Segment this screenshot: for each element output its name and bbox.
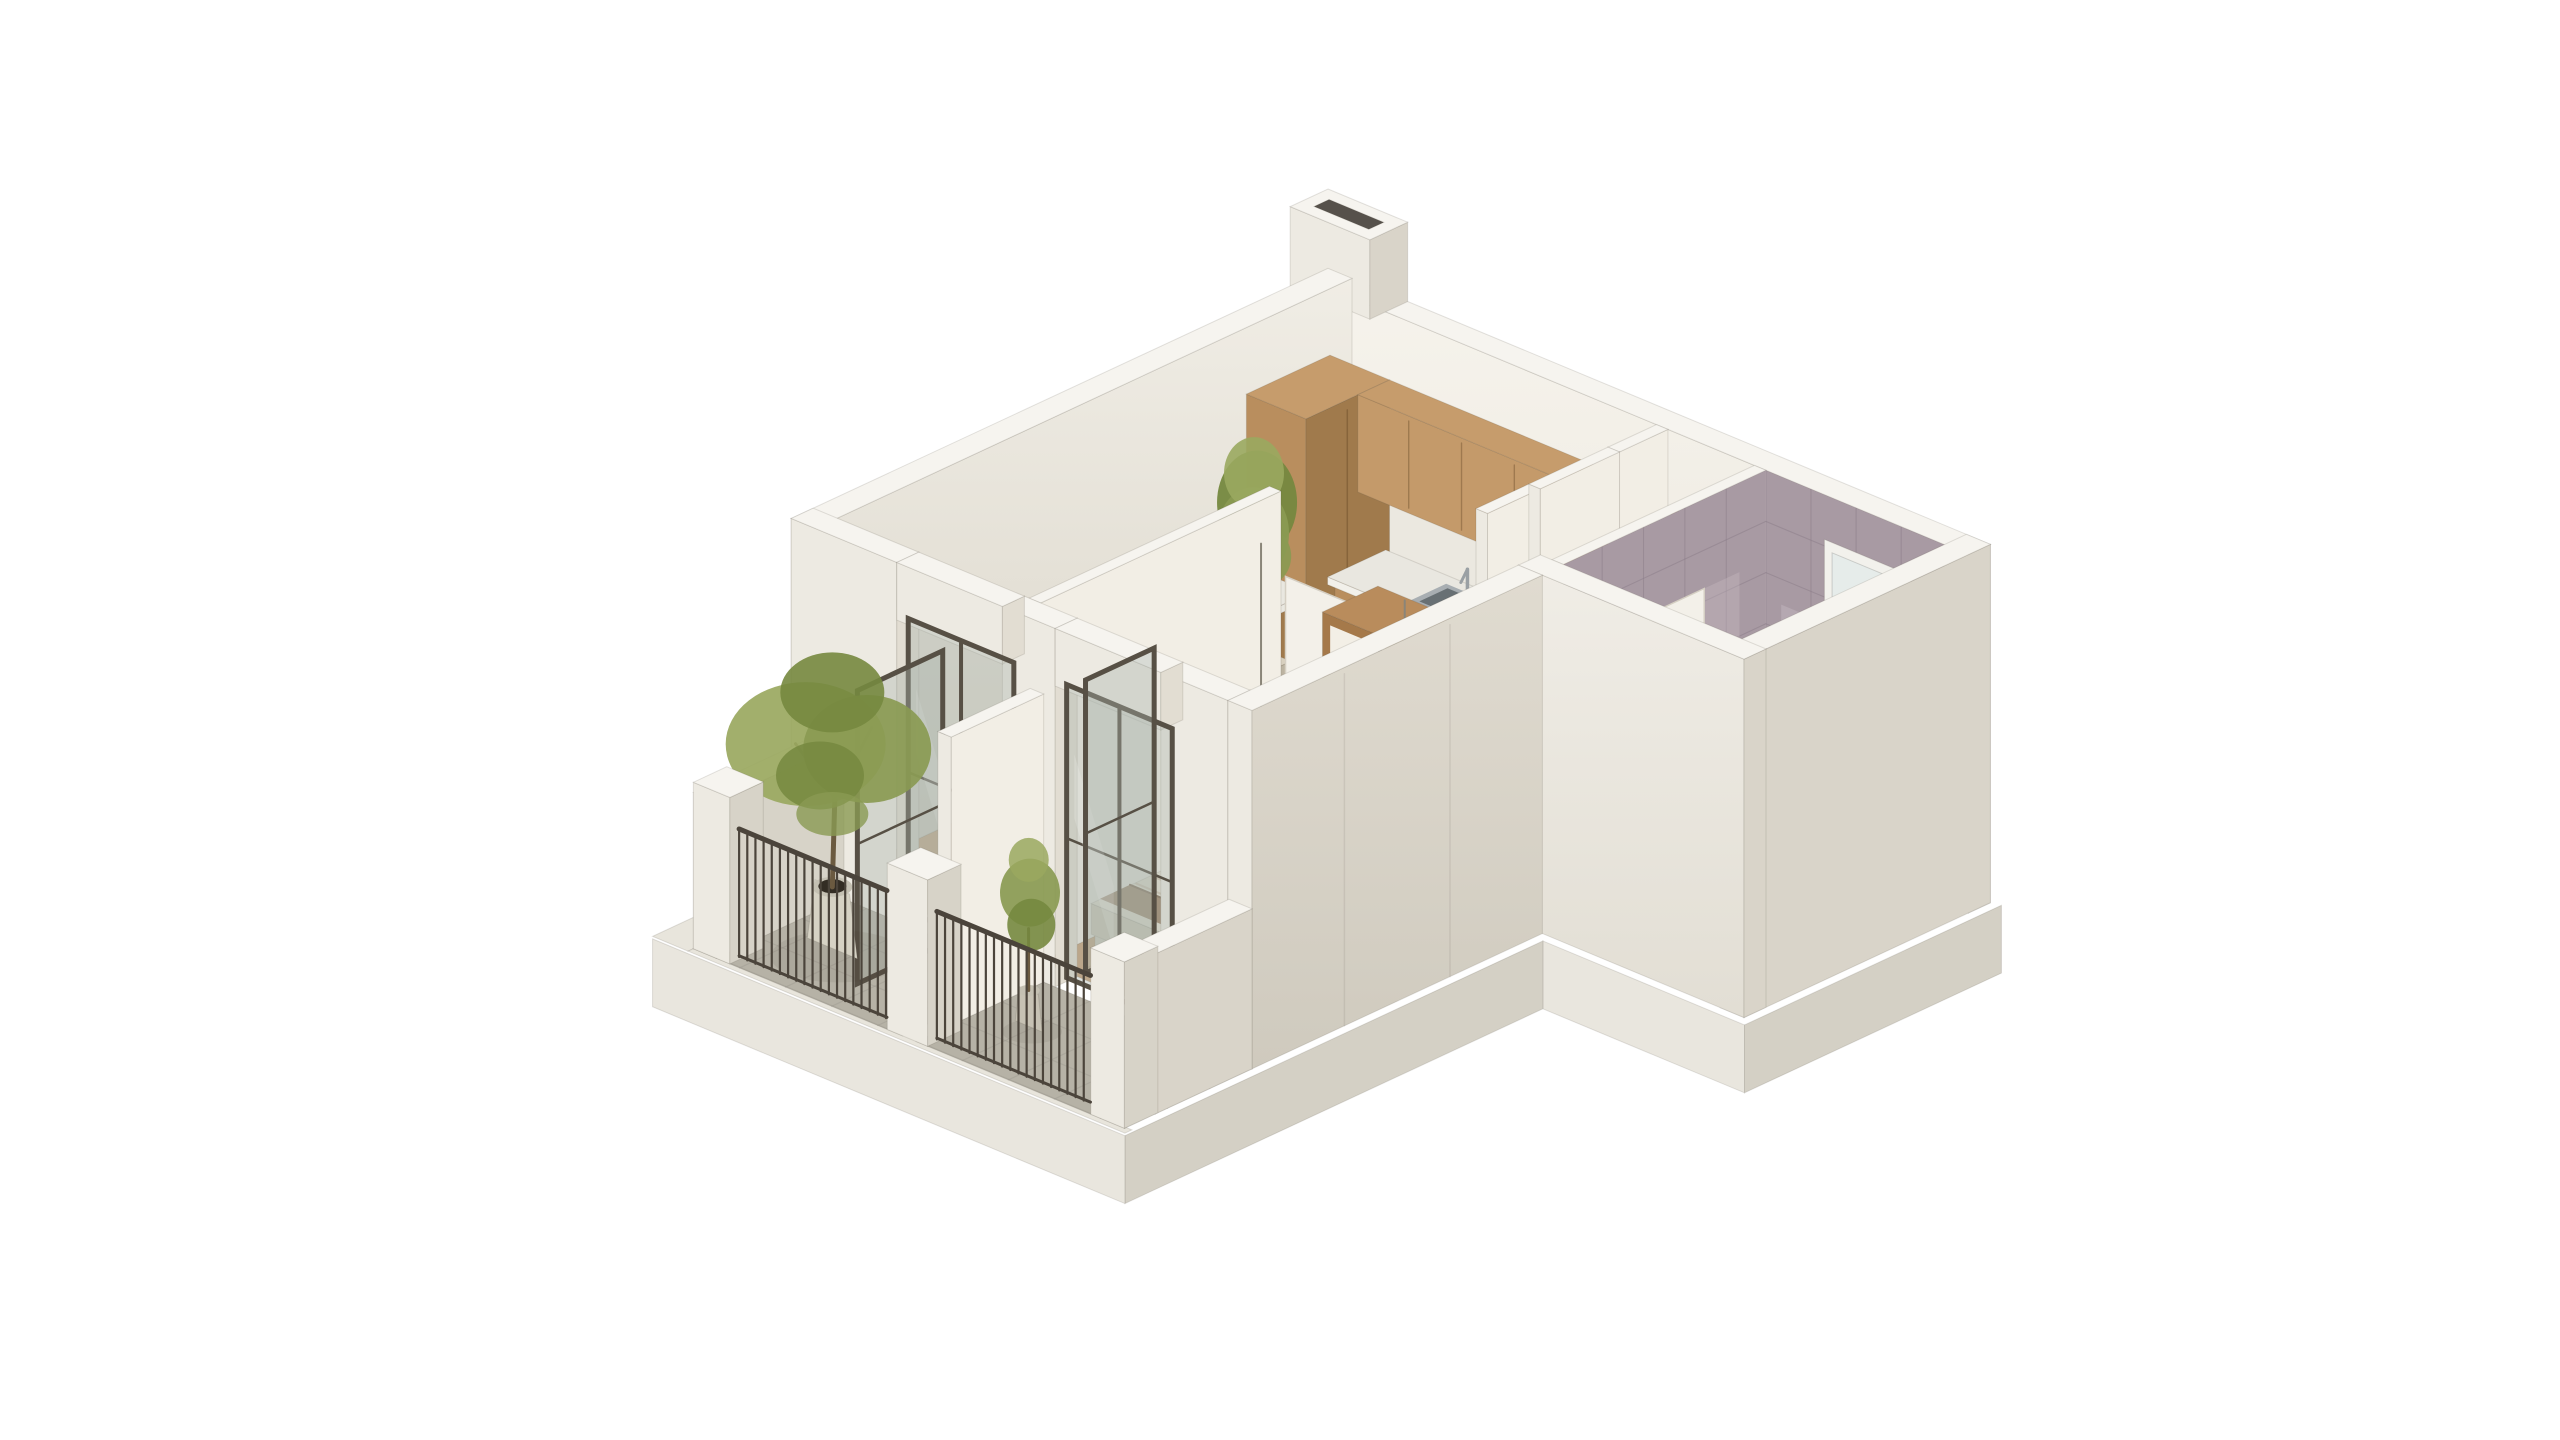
isometric-render-canvas [0, 0, 2560, 1440]
floorplan-render [0, 0, 2560, 1440]
